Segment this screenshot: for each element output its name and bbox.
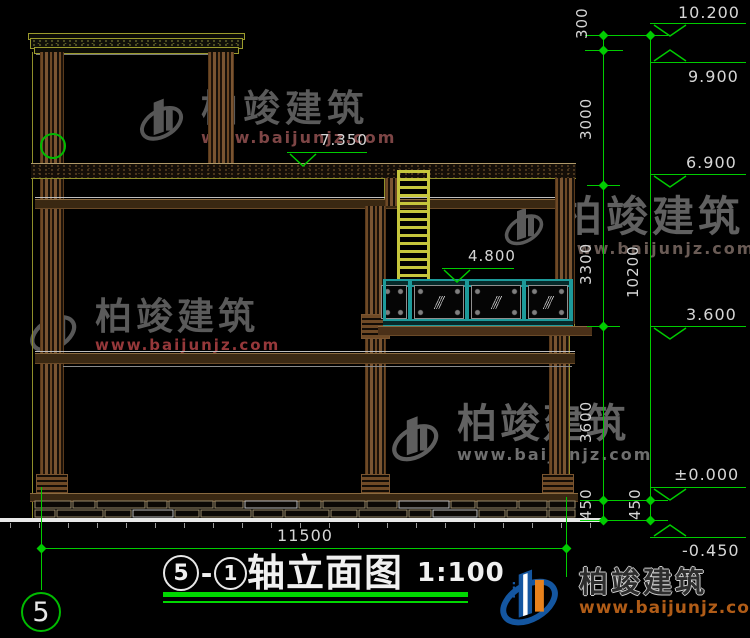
axis-bubble-5: 5 bbox=[21, 592, 61, 632]
glass-panel bbox=[528, 285, 568, 319]
dim-label-10200: 10200 bbox=[624, 242, 641, 302]
dim-tick bbox=[562, 544, 572, 554]
elevation-label-10200: 10.200 bbox=[678, 3, 740, 22]
watermark-brand: 柏竣建筑 bbox=[95, 298, 280, 336]
dim-label-3300: 3300 bbox=[577, 240, 594, 288]
footer-brand-text: 柏竣建筑 bbox=[579, 568, 750, 598]
title-dash: - bbox=[199, 557, 214, 590]
column-middle bbox=[365, 206, 386, 490]
beam-line-lower bbox=[35, 351, 575, 352]
railing-post bbox=[408, 281, 412, 323]
drawing-title: 5 - 1 轴立面图 1:100 bbox=[163, 552, 505, 594]
dim-chain-inner bbox=[603, 35, 604, 520]
elevation-label-zero: ±0.000 bbox=[674, 465, 739, 484]
elevation-triangle-icon bbox=[443, 269, 471, 283]
dim-chain-outer bbox=[650, 35, 651, 520]
elevation-label-7350: 7.350 bbox=[320, 131, 368, 149]
dim-tick bbox=[599, 322, 609, 332]
elevation-label-9900: 9.900 bbox=[688, 67, 739, 86]
dim-line-bottom bbox=[41, 548, 567, 549]
elevation-triangle-icon bbox=[653, 524, 687, 537]
elevation-line bbox=[650, 62, 746, 63]
dim-tick bbox=[599, 496, 609, 506]
column-penthouse-right bbox=[208, 52, 234, 163]
dim-extension-left bbox=[41, 487, 42, 590]
watermark-brand: 柏竣建筑 bbox=[560, 196, 750, 239]
dim-tick bbox=[37, 544, 47, 554]
beam-line-upper bbox=[35, 197, 572, 198]
elevation-triangle-icon bbox=[653, 327, 687, 340]
cad-elevation-drawing: 柏竣建筑 www.baijunjz.com 柏竣建筑 www.baijunjz.… bbox=[0, 0, 750, 638]
title-scale: 1:100 bbox=[417, 558, 505, 588]
brand-logo-icon bbox=[138, 90, 194, 146]
railing-post bbox=[522, 281, 526, 323]
dim-label-450-outer: 450 bbox=[626, 489, 643, 520]
glass-panel bbox=[414, 285, 464, 319]
footer-brand-url: www.baijunjz.com bbox=[579, 598, 750, 618]
railing-post bbox=[383, 281, 386, 323]
floor-slab-3600 bbox=[378, 326, 592, 336]
dim-label-3000: 3000 bbox=[577, 95, 594, 143]
wall-edge-left bbox=[32, 52, 33, 518]
beam-band-upper bbox=[35, 199, 572, 209]
dim-label-3600: 3600 bbox=[577, 398, 594, 446]
dim-tick bbox=[599, 181, 609, 191]
elevation-line bbox=[650, 537, 746, 538]
beam-soffit-line bbox=[63, 366, 572, 367]
elevation-triangle-icon bbox=[653, 488, 687, 501]
dim-tick bbox=[599, 31, 609, 41]
column-axis-circle bbox=[40, 133, 66, 159]
title-text: 轴立面图 bbox=[247, 554, 403, 592]
elevation-triangle-icon bbox=[653, 24, 687, 37]
roof-underside-line bbox=[36, 54, 234, 55]
dim-label-300: 300 bbox=[573, 6, 590, 40]
footer-brand-logo: 柏竣建筑 www.baijunjz.com bbox=[498, 558, 750, 632]
title-underline-thick bbox=[163, 592, 468, 597]
title-underline-thin bbox=[163, 601, 468, 603]
elevation-label-3600: 3.600 bbox=[686, 305, 737, 324]
elevation-triangle-icon bbox=[653, 175, 687, 188]
brand-logo-icon bbox=[390, 404, 450, 470]
brand-logo-icon bbox=[498, 558, 572, 632]
watermark-bottom-center: 柏竣建筑 www.baijunjz.com bbox=[390, 404, 652, 470]
elevation-label-4800: 4.800 bbox=[468, 247, 516, 265]
railing-post bbox=[569, 281, 573, 323]
dim-label-450-inner: 450 bbox=[577, 489, 594, 520]
railing-post bbox=[465, 281, 469, 323]
stone-masonry-base bbox=[33, 500, 578, 518]
elevation-triangle-icon bbox=[289, 153, 317, 167]
glass-panel bbox=[471, 285, 521, 319]
axis-bubble-label: 5 bbox=[32, 597, 49, 628]
dim-label-11500: 11500 bbox=[270, 526, 340, 545]
elevation-label-6900: 6.900 bbox=[686, 153, 737, 172]
beam-band-lower bbox=[35, 353, 575, 364]
column-left bbox=[40, 52, 64, 497]
watermark-left-center: 柏竣建筑 www.baijunjz.com bbox=[28, 298, 280, 358]
elevation-triangle-icon bbox=[653, 49, 687, 62]
title-bubble-left: 5 bbox=[163, 555, 199, 591]
title-bubble-right: 1 bbox=[214, 557, 247, 590]
dim-tick bbox=[599, 46, 609, 56]
ground-line bbox=[0, 518, 604, 522]
ladder bbox=[397, 170, 430, 282]
